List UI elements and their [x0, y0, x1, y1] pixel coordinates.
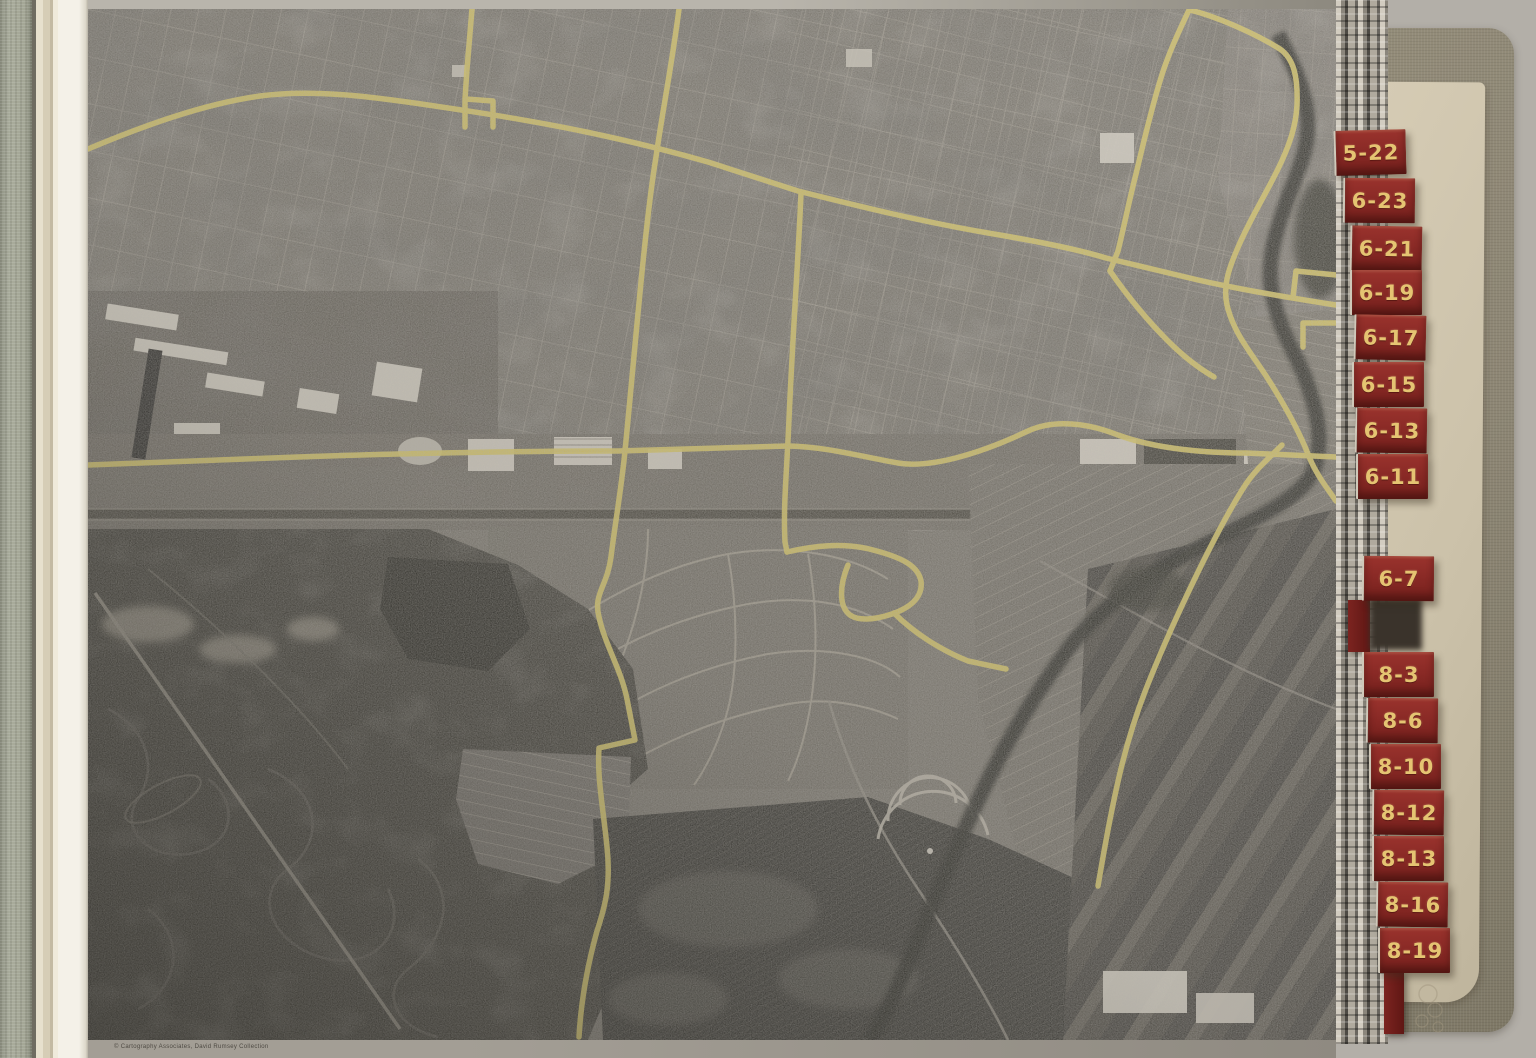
index-tab-label: 8-16	[1385, 892, 1442, 917]
atlas-scan-page: © Cartography Associates, David Rumsey C…	[0, 0, 1536, 1058]
tab-gap-shadow	[1370, 598, 1422, 650]
index-tab-6-11[interactable]: 6-11	[1356, 454, 1428, 499]
index-tab-label: 8-12	[1381, 800, 1438, 825]
photo-shading	[88, 9, 1336, 1040]
index-tab-6-23[interactable]: 6-23	[1343, 178, 1415, 224]
pencil-scribbles	[1404, 980, 1474, 1040]
index-tab-8-12[interactable]: 8-12	[1372, 790, 1444, 836]
index-tab-label: 8-10	[1378, 755, 1435, 779]
hidden-tab-edge-bottom	[1384, 972, 1404, 1034]
index-tab-label: 6-13	[1364, 418, 1421, 443]
aerial-photograph	[88, 9, 1336, 1040]
copyright-watermark: © Cartography Associates, David Rumsey C…	[114, 1044, 269, 1050]
index-tab-label: 6-11	[1365, 465, 1422, 489]
index-tab-6-17[interactable]: 6-17	[1354, 314, 1427, 360]
index-tab-8-19[interactable]: 8-19	[1378, 928, 1450, 973]
hidden-tab-edge	[1348, 600, 1370, 652]
index-tab-5-22[interactable]: 5-22	[1333, 129, 1406, 176]
index-tab-8-16[interactable]: 8-16	[1376, 881, 1449, 927]
page-top-edge	[88, 0, 1336, 9]
index-tab-6-21[interactable]: 6-21	[1350, 225, 1423, 271]
index-tab-6-19[interactable]: 6-19	[1350, 270, 1422, 315]
index-tab-8-10[interactable]: 8-10	[1369, 744, 1441, 789]
page-bottom-edge	[88, 1040, 1336, 1058]
index-tab-label: 8-6	[1382, 708, 1423, 732]
index-tab-label: 8-3	[1379, 663, 1420, 687]
index-tab-label: 8-19	[1387, 939, 1444, 963]
white-page-margin	[58, 0, 88, 1058]
index-tab-label: 6-21	[1359, 236, 1416, 261]
index-tab-8-13[interactable]: 8-13	[1372, 836, 1444, 881]
index-tab-6-7[interactable]: 6-7	[1362, 556, 1434, 602]
index-tab-label: 8-13	[1381, 847, 1438, 871]
index-tab-label: 6-15	[1361, 373, 1418, 397]
left-page-edges	[32, 0, 58, 1058]
index-tab-8-3[interactable]: 8-3	[1362, 652, 1434, 697]
index-tab-6-15[interactable]: 6-15	[1352, 362, 1424, 407]
index-tab-8-6[interactable]: 8-6	[1366, 698, 1438, 744]
index-tab-label: 6-23	[1352, 188, 1409, 212]
book-binding-cloth	[0, 0, 32, 1058]
index-tab-label: 6-7	[1378, 566, 1419, 590]
index-tab-6-13[interactable]: 6-13	[1355, 407, 1428, 453]
index-tab-label: 5-22	[1342, 140, 1399, 165]
index-tab-label: 6-19	[1359, 281, 1416, 305]
index-tab-label: 6-17	[1362, 325, 1419, 350]
